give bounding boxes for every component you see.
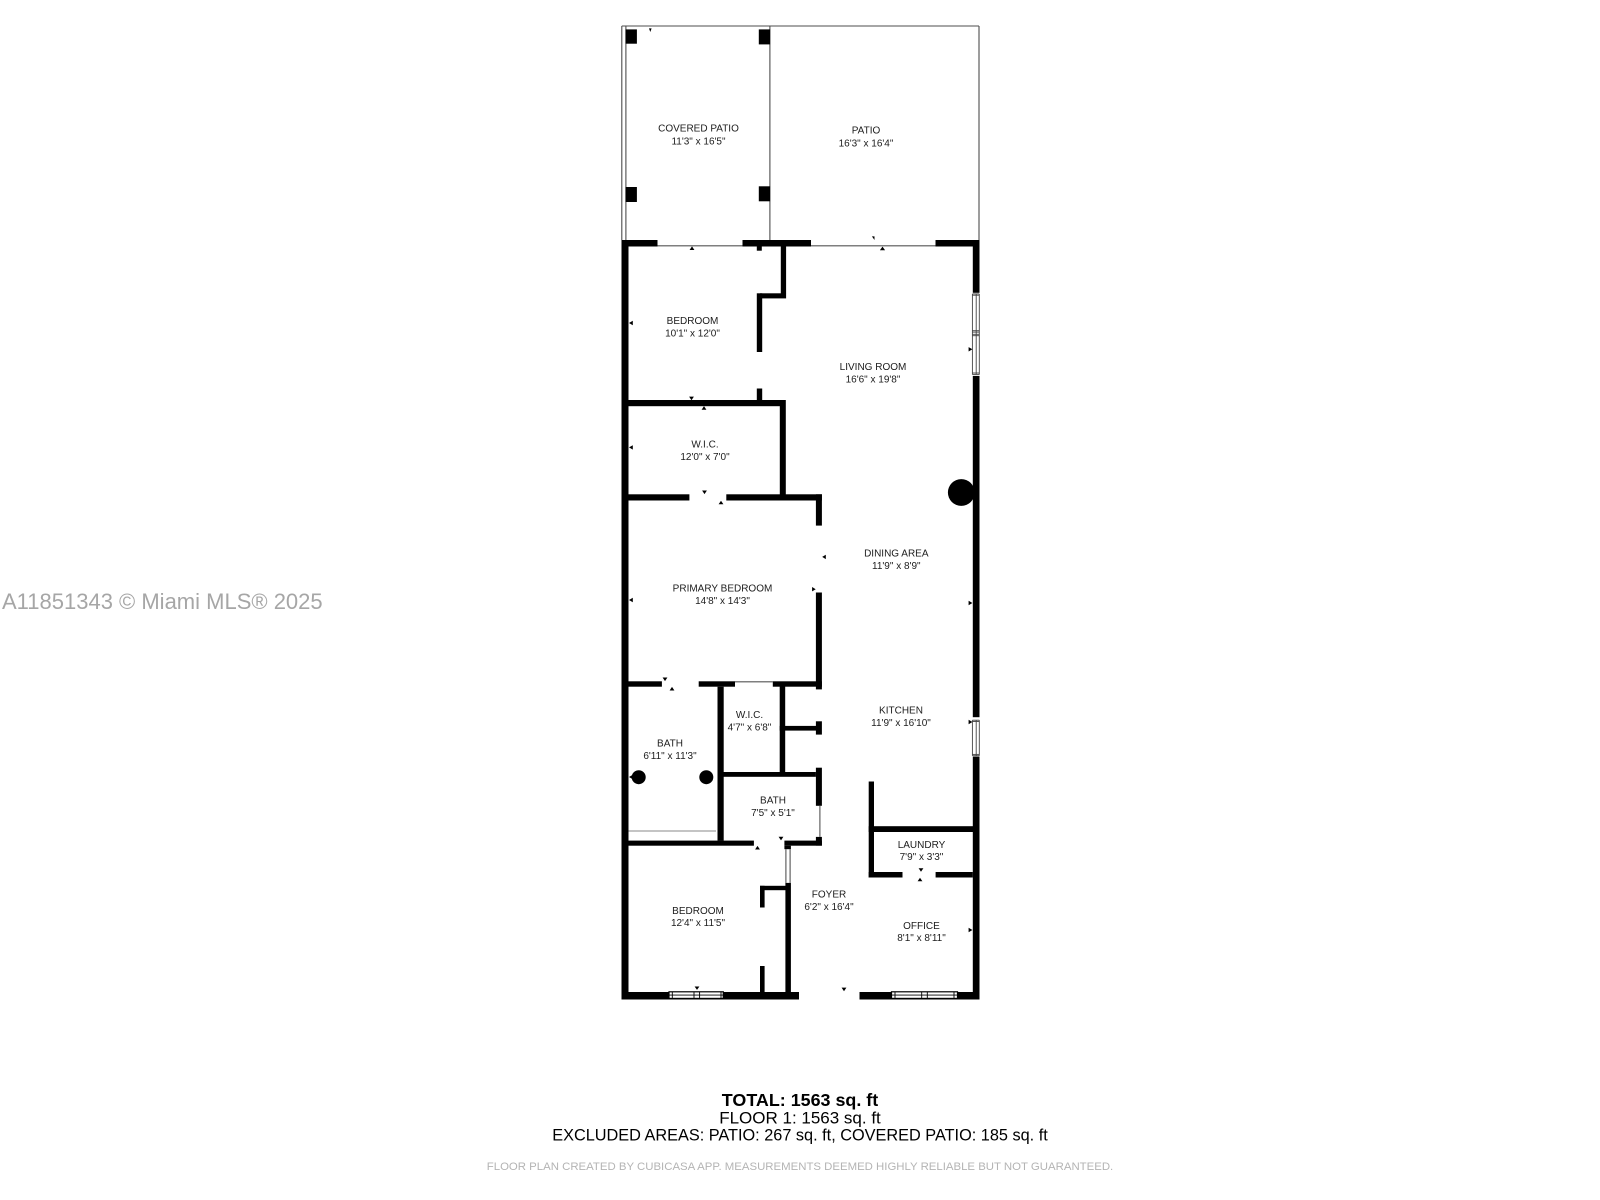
svg-text:BEDROOM: BEDROOM	[667, 316, 719, 327]
svg-text:7'5" x 5'1": 7'5" x 5'1"	[751, 808, 795, 819]
svg-text:BEDROOM: BEDROOM	[672, 906, 724, 917]
svg-text:11'9" x 16'10": 11'9" x 16'10"	[871, 718, 931, 729]
svg-text:LIVING ROOM: LIVING ROOM	[840, 362, 907, 373]
svg-text:PRIMARY BEDROOM: PRIMARY BEDROOM	[673, 584, 773, 595]
svg-text:W.I.C.: W.I.C.	[736, 710, 763, 721]
svg-text:BATH: BATH	[760, 796, 786, 807]
svg-text:EXCLUDED AREAS: PATIO: 267 sq.: EXCLUDED AREAS: PATIO: 267 sq. ft, COVER…	[552, 1127, 1048, 1145]
svg-text:11'3" x 16'5": 11'3" x 16'5"	[671, 137, 726, 148]
svg-text:6'2" x 16'4": 6'2" x 16'4"	[804, 902, 854, 913]
svg-text:16'6" x 19'8": 16'6" x 19'8"	[846, 375, 901, 386]
svg-text:LAUNDRY: LAUNDRY	[898, 840, 946, 851]
svg-text:8'1" x 8'11": 8'1" x 8'11"	[897, 933, 946, 944]
svg-text:FLOOR PLAN CREATED BY CUBICASA: FLOOR PLAN CREATED BY CUBICASA APP. MEAS…	[487, 1161, 1113, 1173]
svg-text:4'7" x 6'8": 4'7" x 6'8"	[728, 723, 772, 734]
svg-text:KITCHEN: KITCHEN	[879, 706, 923, 717]
svg-text:6'11" x 11'3": 6'11" x 11'3"	[643, 751, 697, 762]
svg-text:A11851343 © Miami MLS® 2025: A11851343 © Miami MLS® 2025	[2, 589, 323, 614]
svg-text:PATIO: PATIO	[852, 126, 881, 137]
svg-text:W.I.C.: W.I.C.	[691, 440, 718, 451]
svg-text:DINING AREA: DINING AREA	[864, 549, 929, 560]
svg-text:COVERED PATIO: COVERED PATIO	[658, 124, 739, 135]
svg-text:14'8" x 14'3": 14'8" x 14'3"	[695, 596, 750, 607]
svg-text:FOYER: FOYER	[812, 890, 846, 901]
svg-text:BATH: BATH	[657, 739, 683, 750]
svg-text:12'0" x 7'0": 12'0" x 7'0"	[680, 452, 730, 463]
svg-text:11'9" x 8'9": 11'9" x 8'9"	[872, 561, 921, 572]
svg-text:FLOOR 1: 1563 sq. ft: FLOOR 1: 1563 sq. ft	[719, 1109, 881, 1128]
svg-text:12'4" x 11'5": 12'4" x 11'5"	[671, 918, 726, 929]
svg-text:TOTAL: 1563 sq. ft: TOTAL: 1563 sq. ft	[722, 1090, 878, 1110]
svg-text:OFFICE: OFFICE	[903, 921, 940, 932]
svg-text:7'9" x 3'3": 7'9" x 3'3"	[900, 852, 944, 863]
svg-text:10'1" x 12'0": 10'1" x 12'0"	[665, 329, 720, 340]
svg-text:16'3" x 16'4": 16'3" x 16'4"	[839, 139, 894, 150]
